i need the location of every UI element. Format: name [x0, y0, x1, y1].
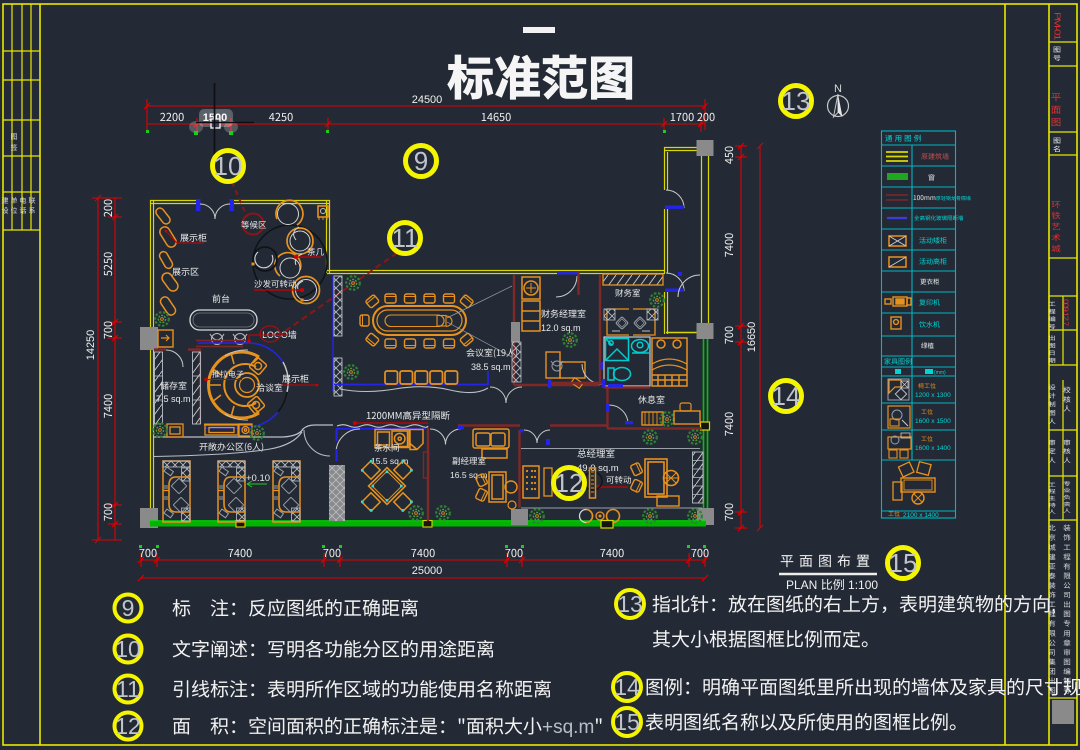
svg-text:财务室: 财务室 [615, 287, 641, 299]
svg-text:椅工位: 椅工位 [918, 381, 936, 390]
svg-text:审核人: 审核人 [1062, 438, 1073, 464]
svg-text:7400: 7400 [228, 545, 252, 561]
svg-text:饮水机: 饮水机 [919, 320, 940, 330]
svg-text:700: 700 [323, 545, 341, 561]
svg-text:总经理室: 总经理室 [577, 446, 615, 460]
svg-text:图名: 图名 [1052, 136, 1063, 153]
svg-text:9: 9 [122, 595, 135, 621]
svg-text:专业负责人: 专业负责人 [1062, 480, 1073, 514]
svg-text:其大小根据图框比例而定。: 其大小根据图框比例而定。 [652, 625, 880, 652]
svg-text:700: 700 [691, 545, 709, 561]
svg-text:通 用 图 例: 通 用 图 例 [885, 133, 921, 144]
svg-text:前台: 前台 [212, 292, 230, 305]
svg-text:PM-01: PM-01 [1053, 12, 1062, 41]
svg-text:文字阐述：写明各功能分区的用途距离: 文字阐述：写明各功能分区的用途距离 [172, 635, 495, 662]
svg-text:标准范图: 标准范图 [447, 40, 635, 109]
svg-text:联系: 联系 [27, 196, 37, 216]
svg-text:复印机: 复印机 [919, 298, 940, 308]
svg-text:7400: 7400 [721, 412, 737, 436]
svg-text:009.12.7: 009.12.7 [1062, 299, 1071, 326]
svg-text:引线标注：表明所作区域的功能使用名称距离: 引线标注：表明所作区域的功能使用名称距离 [172, 675, 552, 702]
svg-text:13: 13 [617, 591, 643, 617]
svg-text:9: 9 [414, 146, 428, 176]
svg-text:更衣柜: 更衣柜 [920, 276, 940, 286]
svg-text:设计制图人: 设计制图人 [1047, 383, 1058, 425]
svg-text:700: 700 [100, 503, 116, 521]
svg-text:审定人: 审定人 [1047, 438, 1058, 464]
svg-text:推拉电子: 推拉电子 [212, 369, 244, 380]
svg-text:14650: 14650 [481, 109, 512, 125]
svg-text:2200: 2200 [160, 109, 184, 125]
svg-text:校核人: 校核人 [1062, 385, 1073, 413]
svg-text:表明图纸名称以及所使用的图框比例。: 表明图纸名称以及所使用的图框比例。 [645, 708, 968, 735]
svg-text:16650: 16650 [746, 322, 758, 353]
svg-text:15: 15 [614, 709, 640, 735]
svg-text:14: 14 [614, 674, 640, 700]
svg-text:标 注：反应图纸的正确距离: 标 注：反应图纸的正确距离 [172, 594, 419, 621]
svg-text:窗: 窗 [928, 173, 935, 183]
svg-text:面 积：空间面积的正确标注是："面积大小+sq.m": 面 积：空间面积的正确标注是："面积大小+sq.m" [172, 712, 603, 739]
svg-text:200: 200 [697, 109, 715, 125]
svg-text:茶几: 茶几 [307, 246, 325, 258]
svg-text:7.5 sq.m: 7.5 sq.m [156, 394, 191, 404]
svg-text:图号: 图号 [1052, 45, 1063, 62]
svg-text:工位: 工位 [921, 434, 933, 443]
svg-text:11: 11 [116, 676, 140, 702]
svg-text:1600 x 1400: 1600 x 1400 [915, 445, 951, 452]
svg-text:38.5 sq.m: 38.5 sq.m [471, 362, 511, 372]
svg-text:出图日期: 出图日期 [1047, 334, 1058, 364]
svg-text:10: 10 [115, 636, 141, 662]
svg-text:副经理室: 副经理室 [452, 455, 487, 467]
svg-text:11: 11 [392, 223, 419, 253]
svg-text:700: 700 [100, 321, 116, 339]
svg-text:12.0 sq.m: 12.0 sq.m [541, 323, 581, 333]
svg-text:原建筑墙: 原建筑墙 [921, 152, 949, 162]
svg-text:4250: 4250 [269, 109, 293, 125]
svg-text:休息室: 休息室 [638, 393, 665, 406]
svg-text:储存室: 储存室 [160, 379, 187, 392]
svg-text:工程主持人: 工程主持人 [1047, 481, 1058, 515]
svg-text:5250: 5250 [100, 252, 116, 276]
svg-text:450: 450 [721, 146, 737, 164]
svg-text:装饰工程有限公司出图专用章审图编制号: 装饰工程有限公司出图专用章审图编制号 [1062, 523, 1073, 695]
svg-text:24500: 24500 [412, 94, 443, 106]
svg-text:茶水间: 茶水间 [374, 442, 400, 454]
svg-text:等候区: 等候区 [241, 219, 267, 231]
svg-text:1200MM高异型隔断: 1200MM高异型隔断 [366, 408, 451, 422]
svg-text:1600 x 1500: 1600 x 1500 [915, 418, 951, 425]
svg-text:12: 12 [115, 713, 141, 739]
svg-text:1700: 1700 [670, 109, 694, 125]
svg-text:指北针：放在图纸的右上方，表明建筑物的方向,: 指北针：放在图纸的右上方，表明建筑物的方向, [652, 590, 1056, 617]
svg-text:洽谈室: 洽谈室 [256, 381, 283, 394]
svg-text:环铁艺术城: 环铁艺术城 [1049, 198, 1063, 253]
svg-text:工位: 工位 [888, 509, 900, 518]
svg-text:7400: 7400 [411, 545, 435, 561]
svg-text:平面图: 平面图 [1049, 91, 1064, 128]
svg-text:会议室(19人): 会议室(19人) [466, 346, 518, 359]
svg-text:家具图例: 家具图例 [884, 357, 912, 367]
svg-text:15: 15 [889, 548, 918, 578]
svg-text:10: 10 [214, 151, 243, 181]
svg-text:7400: 7400 [721, 233, 737, 257]
svg-text:13: 13 [782, 86, 811, 116]
svg-text:(mm): (mm) [934, 370, 946, 376]
svg-text:700: 700 [721, 503, 737, 521]
svg-text:N: N [834, 83, 842, 95]
svg-text:可转动: 可转动 [606, 474, 632, 486]
svg-text:12: 12 [555, 468, 584, 498]
svg-text:工程编号: 工程编号 [1047, 300, 1058, 330]
svg-text:活动高柜: 活动高柜 [919, 257, 947, 267]
svg-text:绿植: 绿植 [921, 340, 935, 350]
svg-text:展示柜: 展示柜 [180, 231, 207, 244]
svg-text:14250: 14250 [85, 330, 97, 361]
svg-text:图例：明确平面图纸里所出现的墙体及家具的尺寸规格: 图例：明确平面图纸里所出现的墙体及家具的尺寸规格 [645, 673, 1080, 700]
svg-text:14: 14 [772, 381, 801, 411]
svg-text:平面图布置: 平面图布置 [780, 551, 875, 571]
svg-text:1200 x 1300: 1200 x 1300 [915, 392, 951, 399]
svg-text:活动矮柜: 活动矮柜 [919, 236, 947, 246]
svg-text:图签: 图签 [9, 132, 19, 154]
svg-text:展示柜: 展示柜 [282, 372, 309, 385]
svg-text:700: 700 [721, 326, 737, 344]
svg-text:2100 x 1400: 2100 x 1400 [903, 512, 939, 519]
svg-text:工位: 工位 [921, 407, 933, 416]
svg-text:全高钢化玻璃隔断墙: 全高钢化玻璃隔断墙 [914, 214, 964, 222]
svg-text:开敞办公区(6人): 开敞办公区(6人) [199, 440, 264, 453]
svg-text:展示区: 展示区 [172, 265, 199, 278]
svg-text:沙发可转动: 沙发可转动 [254, 278, 297, 290]
svg-text:7400: 7400 [100, 394, 116, 418]
svg-text:财务经理室: 财务经理室 [541, 307, 586, 320]
svg-text:25000: 25000 [412, 565, 443, 577]
svg-text:7400: 7400 [600, 545, 624, 561]
svg-text:200: 200 [100, 199, 116, 217]
